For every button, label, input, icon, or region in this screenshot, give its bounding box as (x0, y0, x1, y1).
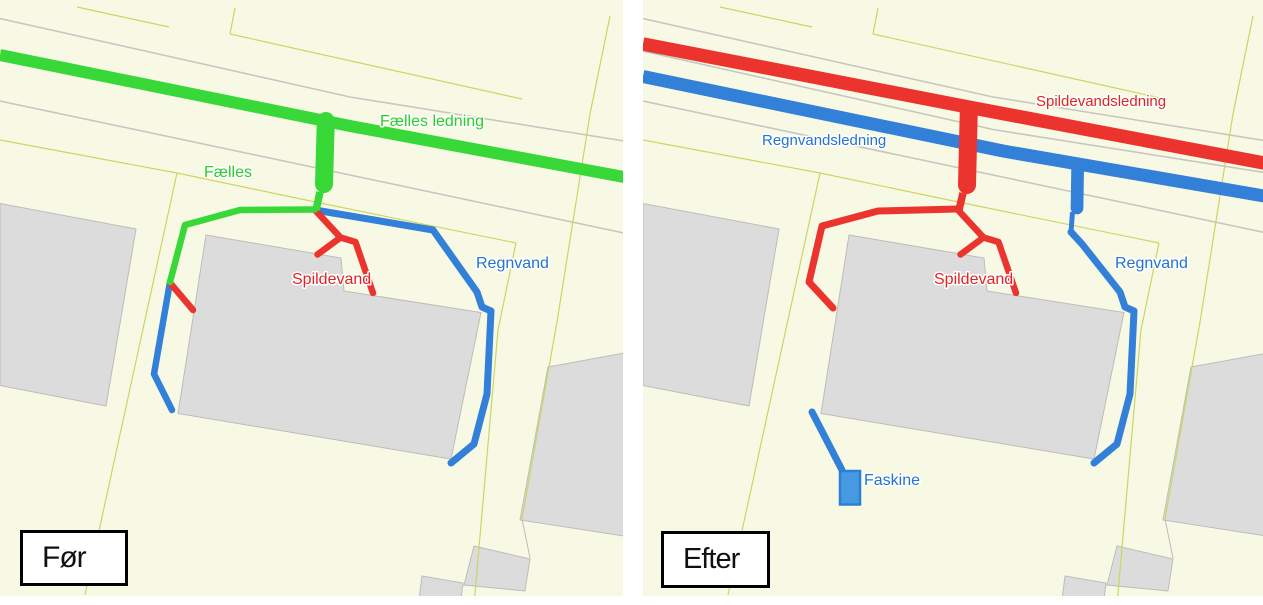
svg-text:Regnvandsledning: Regnvandsledning (762, 132, 886, 149)
svg-text:Fælles ledning: Fælles ledning (380, 113, 484, 130)
svg-text:Spildevandsledning: Spildevandsledning (1036, 93, 1166, 110)
svg-text:Regnvand: Regnvand (1115, 255, 1188, 272)
svg-text:Spildevand: Spildevand (292, 271, 371, 288)
svg-text:Regnvand: Regnvand (476, 255, 549, 272)
svg-text:Faskine: Faskine (864, 472, 920, 489)
svg-text:Spildevand: Spildevand (934, 271, 1013, 288)
svg-text:Fælles: Fælles (204, 164, 252, 181)
